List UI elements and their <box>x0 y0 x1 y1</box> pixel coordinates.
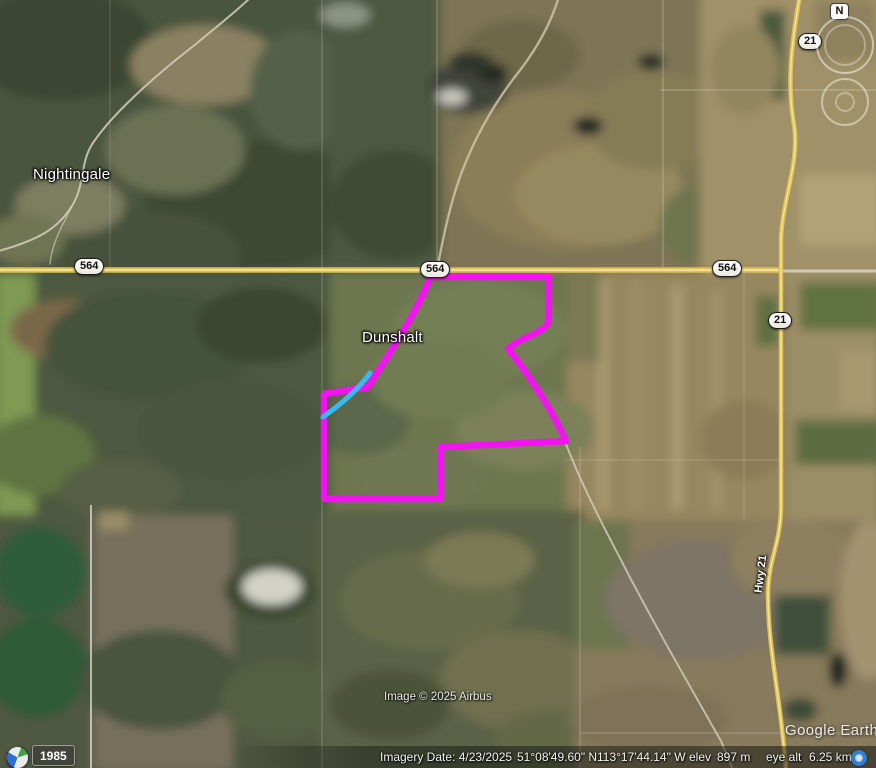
imagery-attribution: Image © 2025 Airbus <box>384 691 492 703</box>
place-label-nightingale: Nightingale <box>33 166 110 183</box>
elevation-label: elev <box>689 750 711 764</box>
pan-joystick-center-icon[interactable] <box>835 92 855 112</box>
hwy-564-shield-center: 564 <box>420 261 450 278</box>
eye-altitude-label: eye alt <box>766 750 801 764</box>
hwy-564-shield-east: 564 <box>712 260 742 277</box>
google-earth-watermark: Google Earth <box>785 722 876 739</box>
latitude-readout: 51°08'49.60" N <box>517 750 597 764</box>
elevation-value: 897 m <box>717 750 750 764</box>
earth-viewport[interactable]: Nightingale Dunshalt Hwy 21 564 564 564 … <box>0 0 876 768</box>
compass-inner-ring-icon[interactable] <box>824 24 866 66</box>
streaming-progress-icon <box>851 750 867 766</box>
imagery-date: Imagery Date: 4/23/2025 <box>380 750 512 764</box>
eye-altitude-value: 6.25 km <box>809 750 852 764</box>
hwy-564-shield-west: 564 <box>74 258 104 275</box>
satellite-imagery[interactable] <box>0 0 876 768</box>
longitude-readout: 113°17'44.14" W <box>597 750 686 764</box>
hwy-21-shield-south: 21 <box>768 312 792 329</box>
place-label-dunshalt: Dunshalt <box>362 329 423 346</box>
terrain-patches <box>0 0 876 768</box>
